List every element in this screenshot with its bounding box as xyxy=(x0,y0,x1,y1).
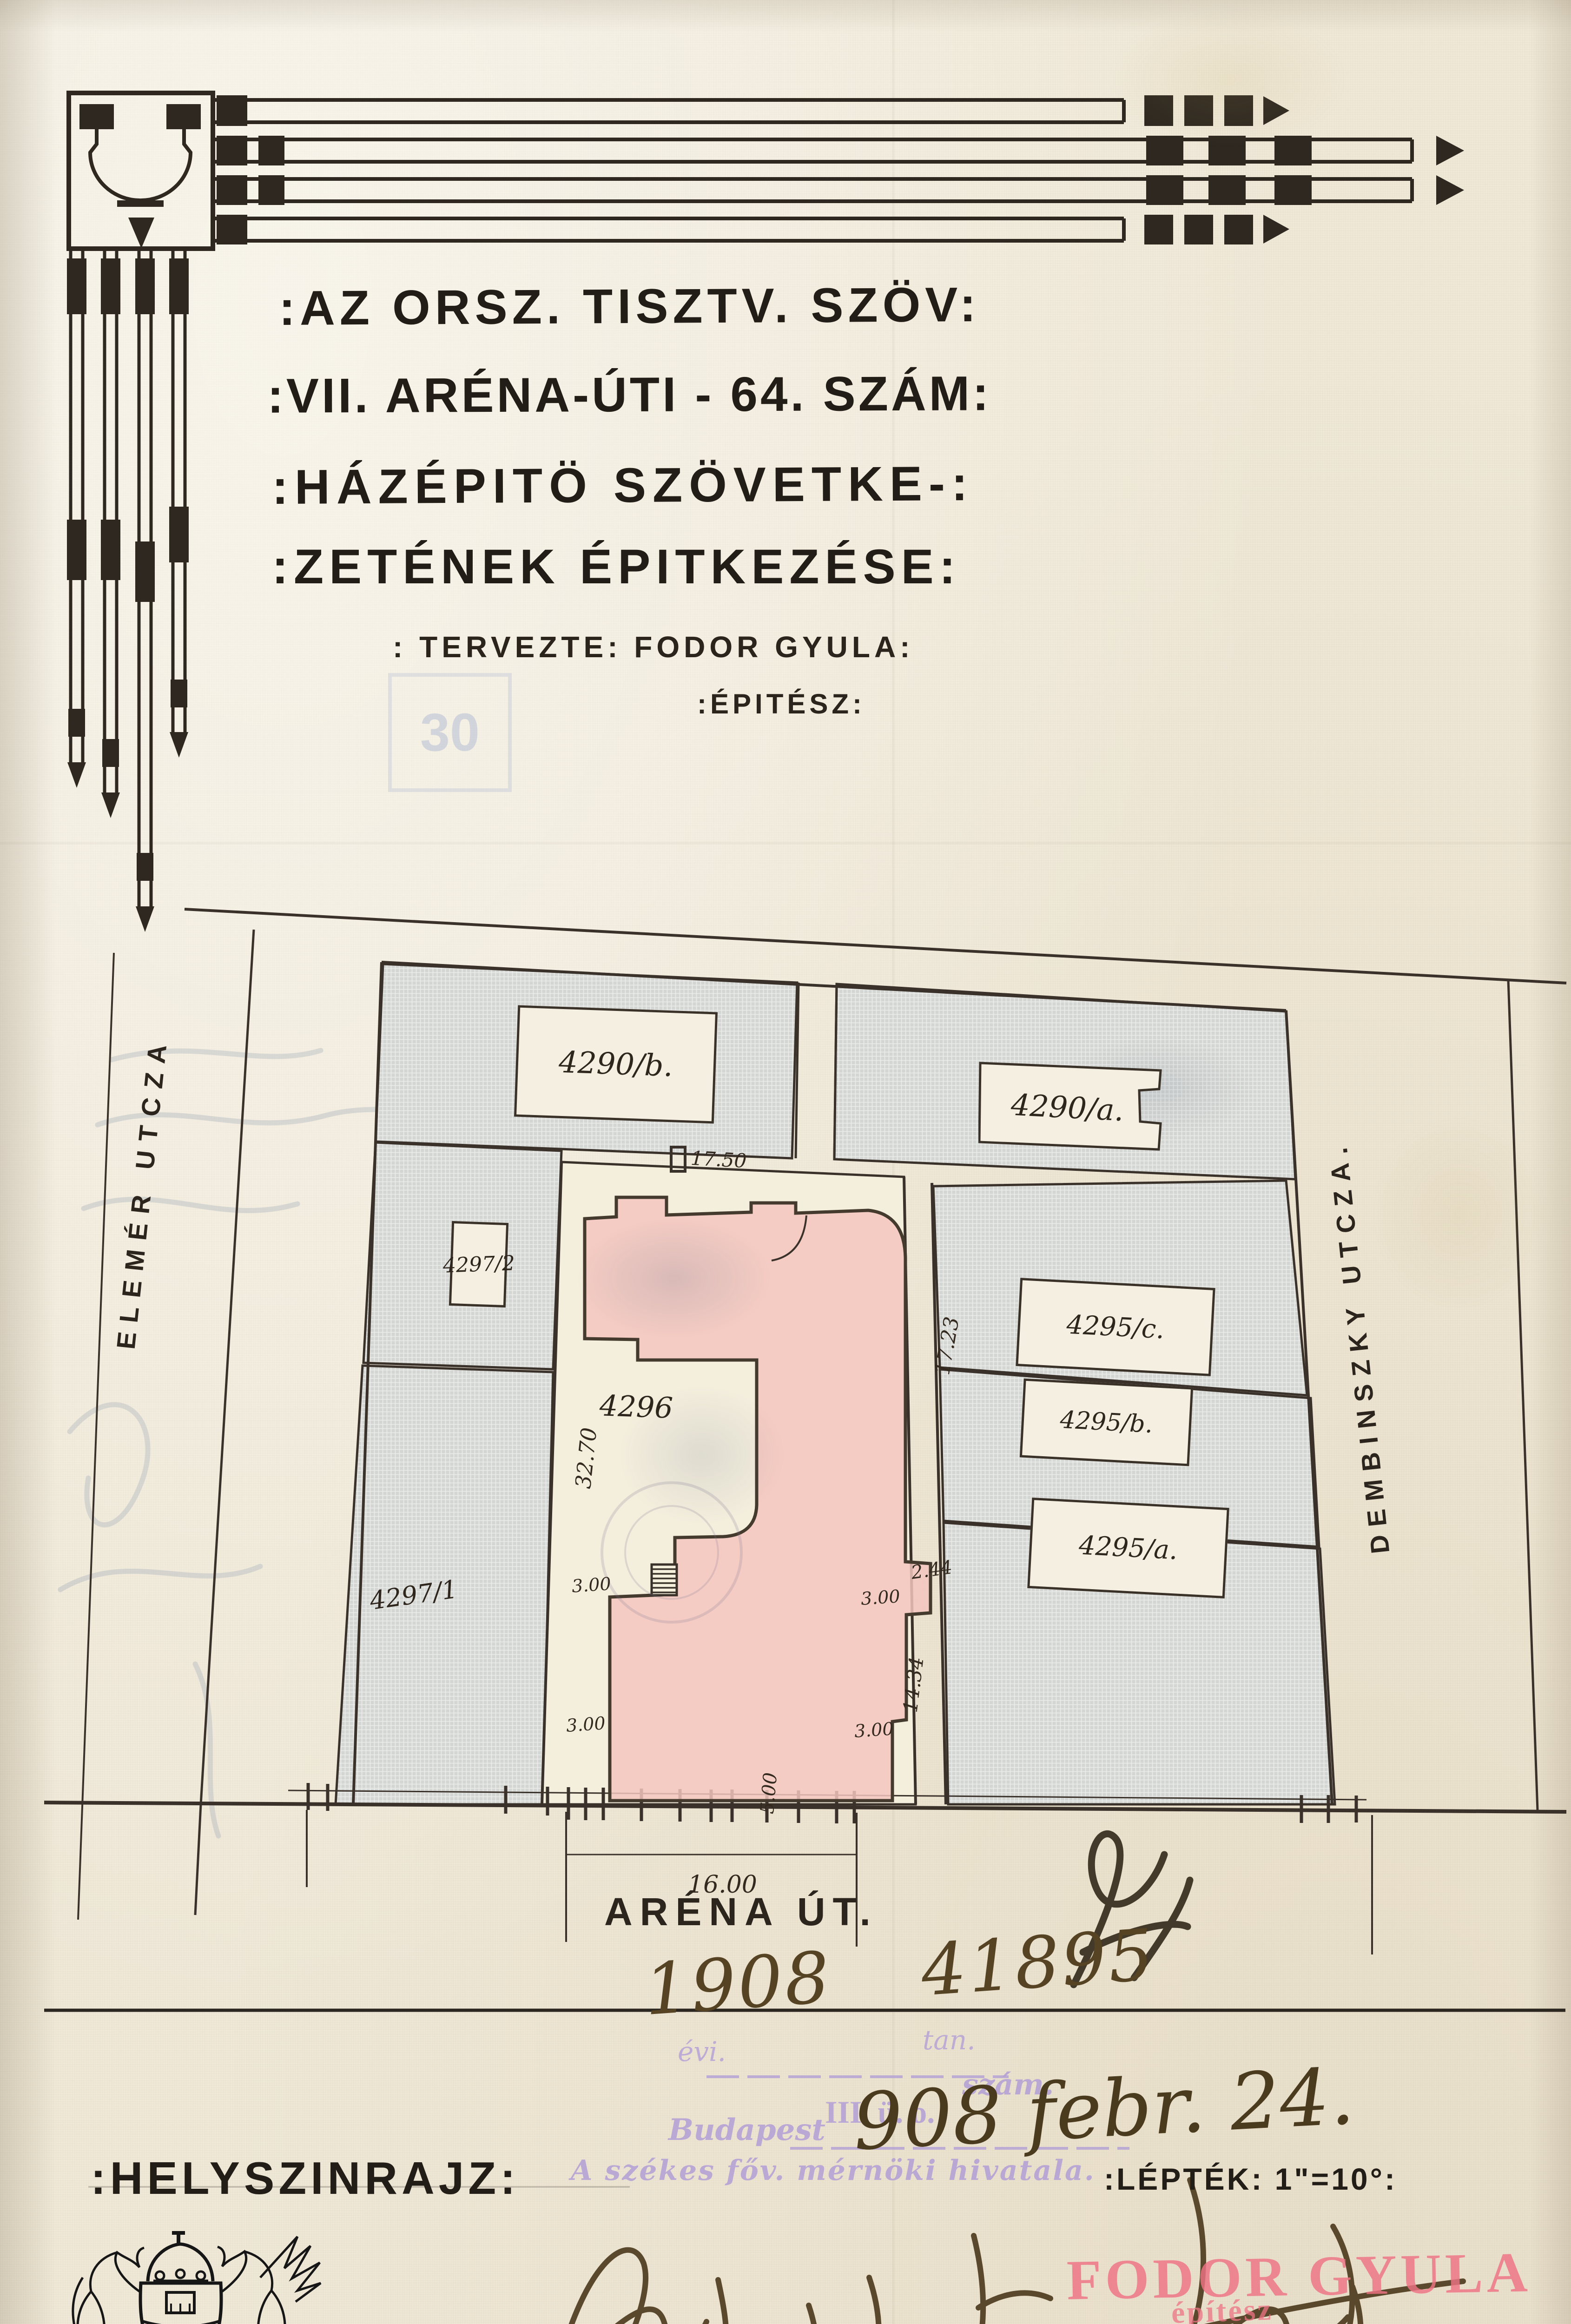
drawing-type-title: :HELYSZINRAJZ: xyxy=(91,2152,520,2205)
parcel-label-4295c: 4295/c. xyxy=(1016,1278,1215,1376)
faint-revenue-stamp: 30 xyxy=(388,673,512,792)
parcel-label-text: 4297/2 xyxy=(442,1251,515,1277)
title-line-4: :ZETÉNEK ÉPITKEZÉSE: xyxy=(272,539,961,595)
parcel-label-text: 4295/c. xyxy=(1066,1309,1165,1345)
signature-cluster-left xyxy=(493,2236,1148,2324)
archive-crest xyxy=(65,2233,321,2324)
dim-3-00-d: 3.00 xyxy=(566,1713,606,1736)
parcel-label-text: 4290/b. xyxy=(558,1045,673,1084)
parcel-label-text: 4290/a. xyxy=(1010,1088,1124,1129)
parcel-label-4295a: 4295/a. xyxy=(1027,1498,1229,1598)
architect-stamp-role: építész xyxy=(1171,2292,1274,2324)
dim-5-00: 5.00 xyxy=(757,1772,782,1815)
parcel-label-4295b: 4295/b. xyxy=(1020,1379,1193,1466)
file-number: 41895 xyxy=(918,1914,1158,2012)
parcel-label-4290a: 4290/a. xyxy=(978,1058,1164,1156)
title-line-1: :AZ ORSZ. TISZTV. SZÖV: xyxy=(279,277,981,337)
parcel-label-text: 4295/a. xyxy=(1078,1530,1179,1565)
stamp-evi: évi. xyxy=(678,2036,726,2067)
stamp-city: Budapest xyxy=(668,2113,825,2147)
title-line-3: :HÁZÉPITÖ SZÖVETKE-: xyxy=(272,456,974,515)
dim-3-00-b: 3.00 xyxy=(854,1718,894,1742)
title-line-2: :VII. ARÉNA-ÚTI - 64. SZÁM: xyxy=(267,366,992,424)
dim-17-50: 17.50 xyxy=(690,1147,747,1172)
scanned-site-plan-sheet: :AZ ORSZ. TISZTV. SZÖV: :VII. ARÉNA-ÚTI … xyxy=(0,0,1571,2324)
dim-3-00-c: 3.00 xyxy=(571,1573,612,1597)
stamp-tan: tan. xyxy=(923,2024,976,2056)
parcel-label-4290b: 4290/b. xyxy=(514,1005,718,1124)
stairs-icon xyxy=(652,1565,677,1595)
stain xyxy=(1106,9,1348,149)
file-year: 1908 xyxy=(641,1936,834,2032)
parcel-label-4296: 4296 xyxy=(599,1388,673,1425)
faint-stamp-number: 30 xyxy=(420,702,480,763)
scale-label: :LÉPTÉK: 1"=10°: xyxy=(1104,2161,1397,2197)
graphite-smudge xyxy=(576,1218,772,1339)
designed-by-line: : TERVEZTE: FODOR GYULA: xyxy=(393,630,914,664)
architect-stamp-name: FODOR GYULA xyxy=(1066,2240,1532,2313)
architect-role-line: :ÉPITÉSZ: xyxy=(697,688,865,720)
dim-3-00-a: 3.00 xyxy=(860,1586,901,1609)
site-plan xyxy=(44,909,1566,1954)
dim-16-00: 16.00 xyxy=(688,1871,757,1899)
parcel-label-text: 4295/b. xyxy=(1059,1406,1154,1439)
stain xyxy=(1371,1116,1548,1311)
parcel-label-4297-2: 4297/2 xyxy=(449,1221,508,1307)
